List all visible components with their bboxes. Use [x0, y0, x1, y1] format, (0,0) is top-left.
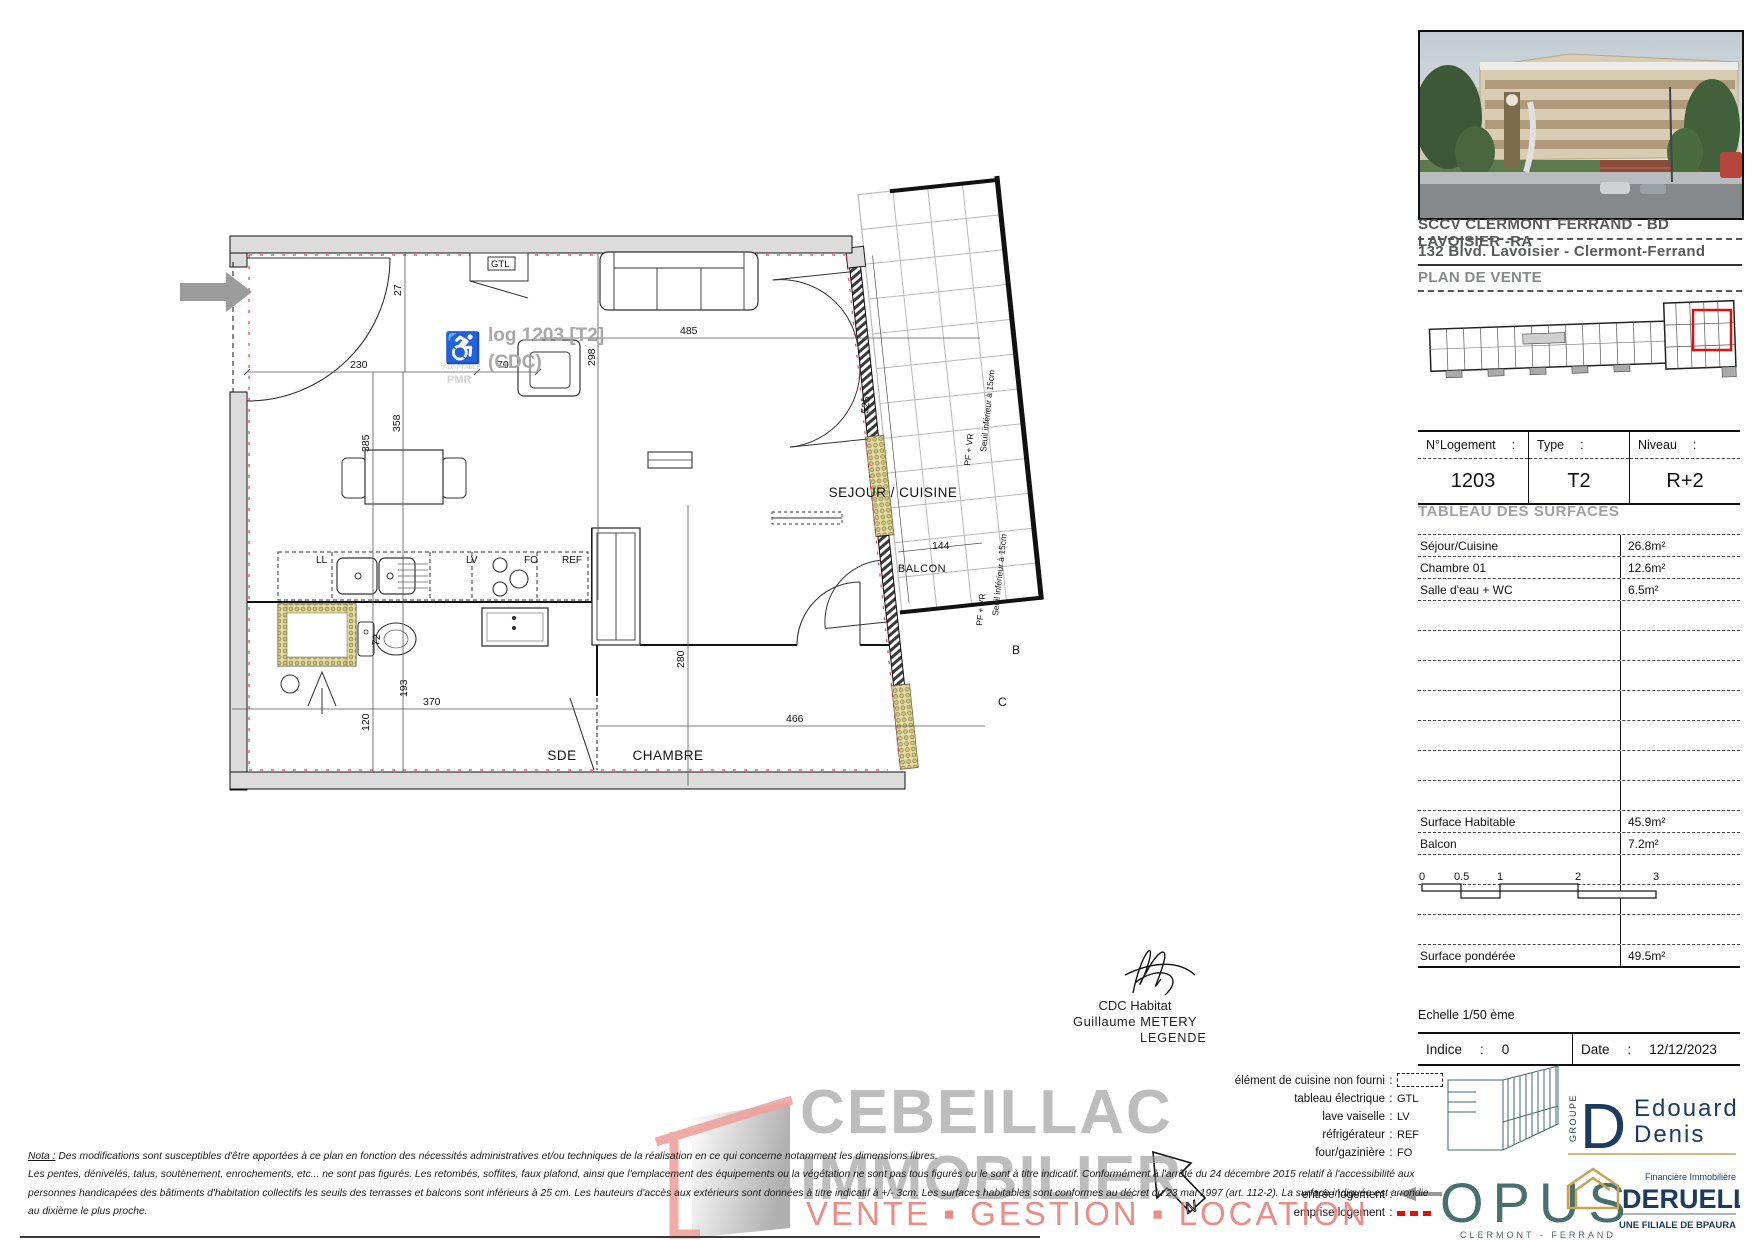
surface-value — [1621, 661, 1740, 690]
dim-label: 230 — [350, 359, 368, 371]
colon: : — [1385, 1129, 1397, 1141]
unit-watermark-line2: (CDC) — [488, 352, 542, 373]
dim-label: 525 — [859, 395, 873, 414]
surface-row — [1418, 601, 1740, 631]
surface-row: Chambre 0112.6m² — [1418, 557, 1740, 579]
project-address: 132 Blvd. Lavoisier - Clermont-Ferrand — [1418, 243, 1742, 260]
unit-type-value: T2 — [1529, 459, 1629, 503]
surface-row: Séjour/Cuisine26.8m² — [1418, 535, 1740, 557]
window-sill — [772, 512, 842, 524]
section-letter-c: C — [998, 695, 1007, 709]
dining-table-chairs — [342, 450, 466, 504]
surface-value: 6.5m² — [1621, 579, 1740, 600]
entry-door-swing — [247, 258, 390, 401]
dim-label: 193 — [398, 679, 410, 697]
colon: : — [1628, 1042, 1632, 1057]
chambre-door-swing — [797, 582, 860, 645]
date-label: Date — [1581, 1042, 1610, 1057]
scale-tick: 1 — [1497, 871, 1503, 883]
divider — [1418, 264, 1742, 266]
unit-col-logement: N°Logement: 1203 — [1418, 432, 1528, 503]
tv-table — [648, 452, 692, 468]
surface-label — [1418, 751, 1621, 780]
surface-row: Surface pondérée49.5m² — [1418, 945, 1740, 968]
floor-drain — [281, 672, 336, 714]
surface-label — [1418, 915, 1621, 944]
denis-text: Denis — [1634, 1121, 1705, 1148]
opus-city: CLERMONT - FERRAND — [1460, 1230, 1616, 1240]
surface-value: 7.2m² — [1621, 833, 1740, 854]
unit-info-table: N°Logement: 1203 Type: T2 Niveau: R+2 — [1418, 430, 1740, 505]
dim-label: 27 — [392, 284, 404, 296]
divider — [1418, 238, 1742, 240]
scale-tick: 2 — [1575, 871, 1581, 883]
dim-label: 385 — [360, 434, 372, 452]
dim-label: 466 — [786, 713, 804, 725]
page-bottom-rule — [20, 1236, 1040, 1238]
dim-label: 144 — [932, 540, 950, 552]
svg-text:PMR: PMR — [447, 374, 472, 386]
scale-bar: 0 0.5 1 2 3 — [1418, 868, 1678, 902]
legend-value: LV — [1397, 1111, 1457, 1123]
legend-value: GTL — [1397, 1093, 1457, 1105]
surface-label: Surface pondérée — [1418, 945, 1621, 966]
entry-arrow-icon — [180, 272, 252, 312]
surface-value: 49.5m² — [1621, 945, 1740, 966]
surface-row — [1418, 781, 1740, 811]
nota-label: Nota : — [28, 1151, 55, 1162]
surface-label — [1418, 781, 1621, 810]
building-photo-art — [1420, 32, 1742, 218]
colon: : — [1385, 1093, 1397, 1105]
surface-row — [1418, 691, 1740, 721]
svg-text:♿: ♿ — [444, 330, 481, 365]
unit-number-value: 1203 — [1418, 459, 1528, 503]
nota-line: au dixième le plus proche. — [28, 1203, 1428, 1221]
surface-label: Chambre 01 — [1418, 557, 1621, 578]
unit-label: N°Logement — [1426, 438, 1496, 452]
scale-caption: Echelle 1/50 ème — [1418, 1008, 1515, 1022]
financiere-label: Financière Immobilière — [1645, 1172, 1736, 1182]
dim-label: 358 — [391, 414, 403, 432]
colon: : — [1693, 438, 1696, 452]
surfaces-table-title: TABLEAU DES SURFACES — [1418, 503, 1619, 520]
colon: : — [1385, 1075, 1397, 1087]
surface-value — [1621, 601, 1740, 630]
legend-value: REF — [1397, 1129, 1457, 1141]
kitchen-element-symbol — [1397, 1073, 1457, 1090]
plan-de-vente-sheet: LL LV FO REF GTL — [0, 0, 1755, 1240]
unit-watermark-line1: log 1203 [T2] — [488, 325, 604, 346]
indice-label: Indice — [1426, 1042, 1462, 1057]
signature-company: CDC Habitat — [1050, 998, 1220, 1013]
unit-col-niveau: Niveau: R+2 — [1629, 432, 1740, 503]
surface-label: Séjour/Cuisine — [1418, 535, 1621, 556]
watermark-cebeillac: CEBEILLAC — [800, 1082, 1173, 1144]
room-label-sde: SDE — [547, 748, 576, 763]
shower — [278, 604, 356, 666]
surface-value — [1621, 781, 1740, 810]
deruelle-wordmark: DERUELLE — [1622, 1184, 1740, 1214]
colon: : — [1480, 1042, 1484, 1057]
bpaura-label: UNE FILIALE DE BPAURA — [1619, 1220, 1736, 1231]
indice-cell: Indice : 0 — [1418, 1034, 1573, 1064]
surface-label — [1418, 661, 1621, 690]
surface-row: Surface Habitable45.9m² — [1418, 811, 1740, 833]
scale-tick: 0.5 — [1454, 871, 1469, 883]
divider — [1418, 290, 1742, 292]
unit-label: Niveau — [1638, 438, 1677, 452]
label-ll: LL — [316, 555, 328, 566]
legend-title: LEGENDE — [1140, 1031, 1207, 1045]
dim-label: 72 — [370, 633, 383, 646]
date-cell: Date : 12/12/2023 — [1573, 1034, 1725, 1064]
surface-label — [1418, 691, 1621, 720]
edouard-denis-logo: GROUPE D Edouard Denis — [1568, 1090, 1739, 1162]
indice-value: 0 — [1502, 1042, 1510, 1057]
surface-row — [1418, 915, 1740, 945]
edouard-text: Edouard — [1634, 1095, 1739, 1122]
floor-plan-drawing: LL LV FO REF GTL — [0, 0, 1100, 880]
nota-line: personnes handicapées des bâtiments d'ha… — [28, 1185, 1428, 1203]
signature-scribble — [1095, 935, 1215, 1000]
colon: : — [1580, 438, 1583, 452]
surface-label: Balcon — [1418, 833, 1621, 854]
surface-value — [1621, 751, 1740, 780]
balcony-group — [764, 176, 1059, 777]
surface-row — [1418, 661, 1740, 691]
surface-label — [1418, 631, 1621, 660]
surface-row — [1418, 631, 1740, 661]
date-value: 12/12/2023 — [1649, 1042, 1717, 1057]
logos-block: GROUPE D Edouard Denis OPUS CLERMONT - F… — [1418, 1062, 1740, 1240]
colon: : — [1512, 438, 1515, 452]
surface-row — [1418, 751, 1740, 781]
surface-value: 12.6m² — [1621, 557, 1740, 578]
surface-value — [1621, 691, 1740, 720]
scale-tick: 3 — [1653, 871, 1659, 883]
surface-label: Surface Habitable — [1418, 811, 1621, 832]
room-label-balcon: BALCON — [898, 563, 946, 575]
surface-label — [1418, 601, 1621, 630]
nota-line: Les pentes, dénivelés, talus, soutènemen… — [28, 1166, 1428, 1184]
surface-label — [1418, 721, 1621, 750]
building-plan-thumbnail — [1425, 296, 1740, 388]
section-letter-b: B — [1012, 643, 1020, 657]
groupe-label: GROUPE — [1568, 1094, 1578, 1142]
vanity-sink — [482, 608, 548, 646]
exterior-walls — [230, 236, 905, 790]
dim-label: 370 — [423, 696, 441, 708]
surface-value: 45.9m² — [1621, 811, 1740, 832]
room-label-chambre: CHAMBRE — [632, 748, 703, 763]
nota-text: Des modifications sont susceptibles d'êt… — [55, 1151, 937, 1162]
wc-toilet — [358, 622, 416, 656]
label-lv: LV — [466, 555, 478, 566]
label-ref: REF — [562, 555, 582, 566]
sofa — [600, 252, 758, 310]
room-label-sejour: SEJOUR / CUISINE — [829, 485, 958, 500]
colon: : — [1385, 1111, 1397, 1123]
unit-level-value: R+2 — [1630, 459, 1740, 503]
building-photo — [1418, 30, 1744, 220]
dim-label: 280 — [675, 650, 687, 668]
opus-wordmark: OPUS — [1440, 1171, 1635, 1234]
surface-row: Salle d'eau + WC6.5m² — [1418, 579, 1740, 601]
label-gtl: GTL — [491, 259, 509, 270]
surface-row — [1418, 721, 1740, 751]
pf-vr-label: PF + VR — [974, 593, 987, 626]
surface-value — [1621, 631, 1740, 660]
svg-text:ADAPTABLE: ADAPTABLE — [443, 364, 481, 371]
signature-name: Guillaume METERY — [1050, 1014, 1220, 1029]
surface-value — [1621, 915, 1740, 944]
surface-label: Salle d'eau + WC — [1418, 579, 1621, 600]
dim-label: 120 — [360, 713, 372, 731]
surface-row: Balcon7.2m² — [1418, 833, 1740, 855]
dashed-rect-icon — [1397, 1073, 1443, 1087]
label-fo: FO — [524, 555, 538, 566]
surface-value — [1621, 721, 1740, 750]
indice-date-table: Indice : 0 Date : 12/12/2023 — [1418, 1032, 1740, 1066]
unit-col-type: Type: T2 — [1528, 432, 1629, 503]
nota-line: Nota : Des modifications sont susceptibl… — [28, 1148, 1428, 1166]
wheelchair-pmr-icon: ♿ ADAPTABLE PMR — [443, 330, 481, 386]
dim-label: 298 — [586, 348, 598, 366]
doc-type-title: PLAN DE VENTE — [1418, 269, 1742, 286]
nota-block: Nota : Des modifications sont susceptibl… — [28, 1148, 1428, 1222]
surface-value: 26.8m² — [1621, 535, 1740, 556]
unit-label: Type — [1537, 438, 1564, 452]
surfaces-table: Séjour/Cuisine26.8m²Chambre 0112.6m²Sall… — [1418, 534, 1740, 968]
ed-monogram: D — [1580, 1090, 1626, 1162]
dim-label: 485 — [680, 325, 698, 337]
wardrobe — [592, 528, 640, 645]
scale-tick: 0 — [1419, 871, 1425, 883]
